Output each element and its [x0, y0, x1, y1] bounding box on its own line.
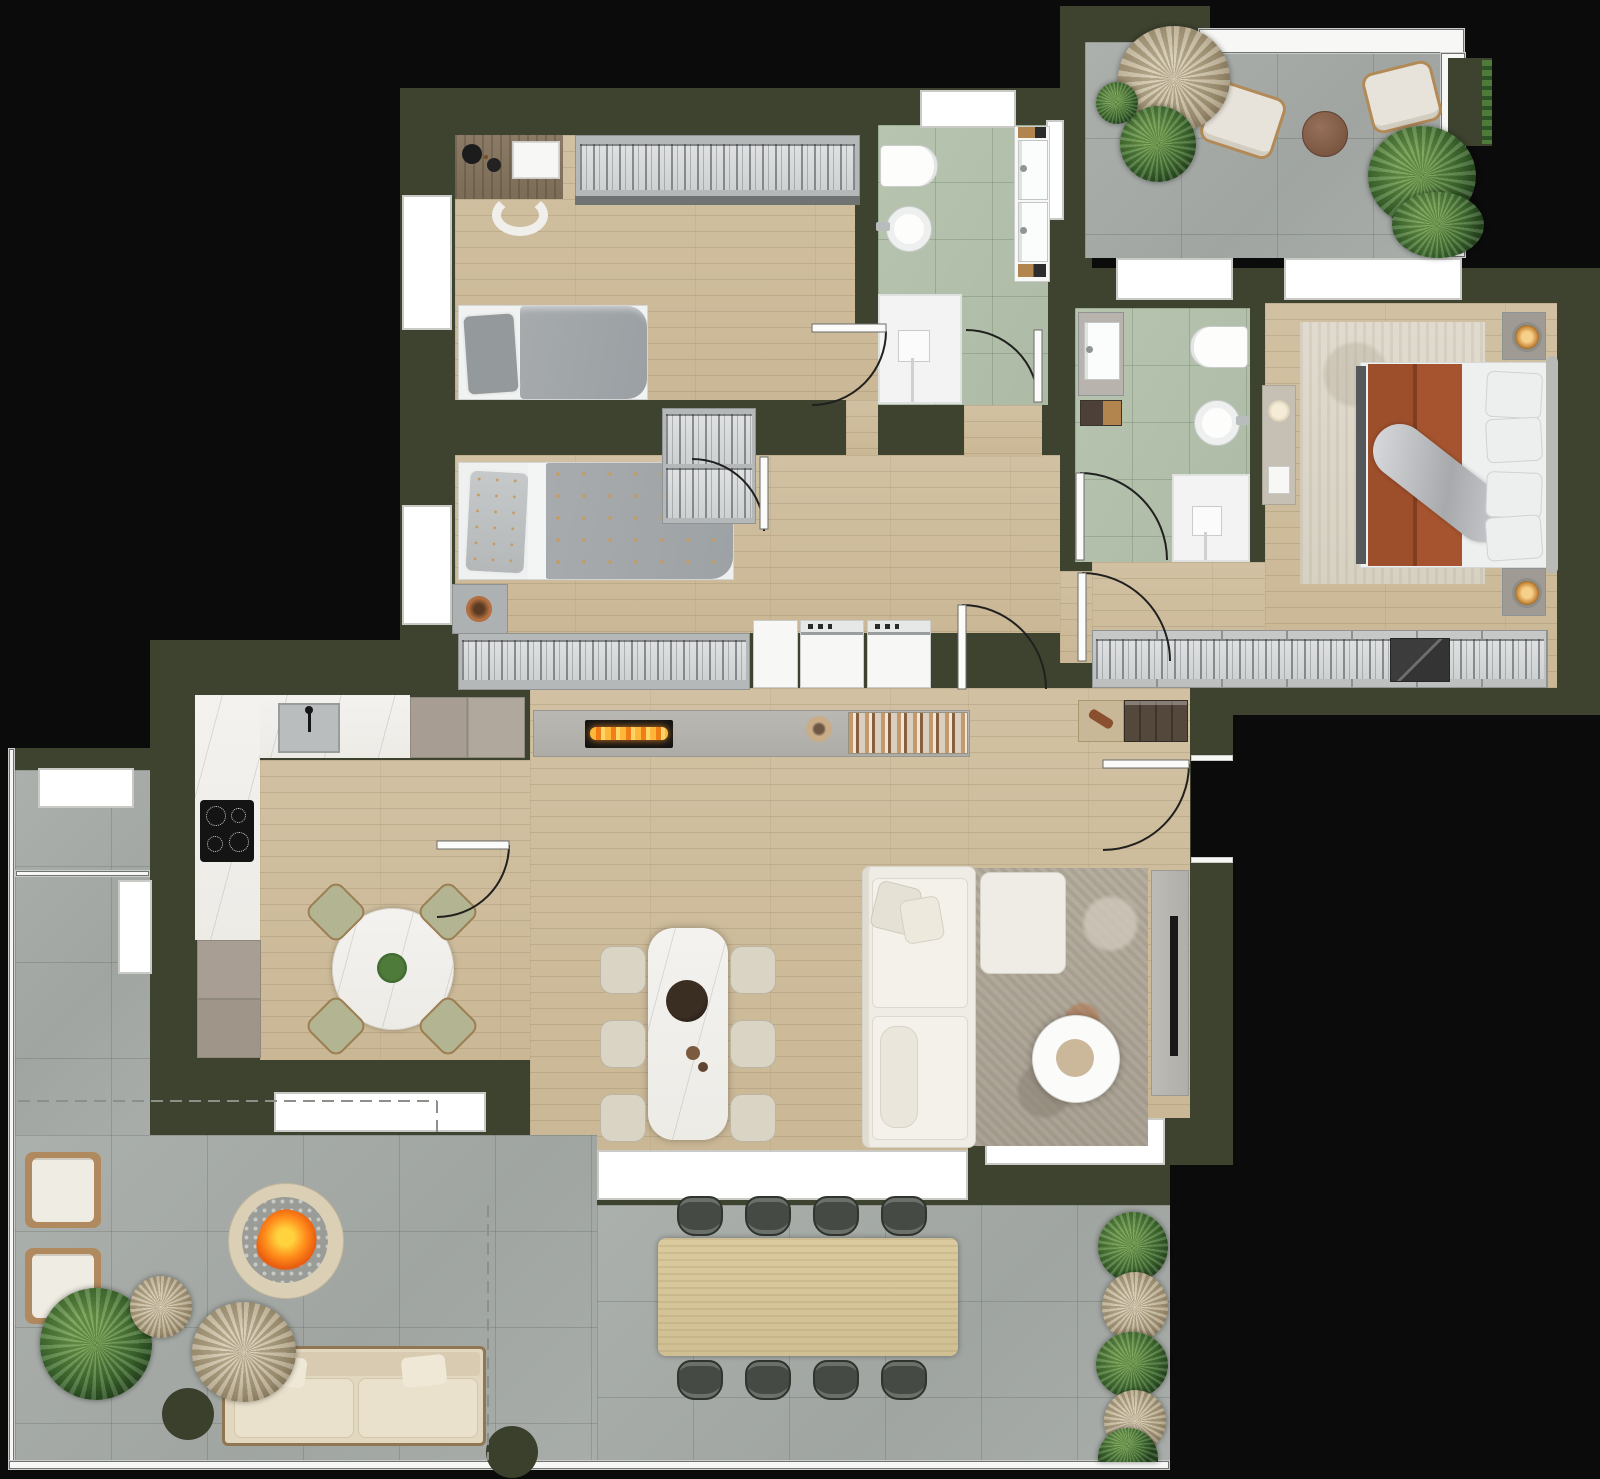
dining-chair-r3 [730, 1094, 776, 1142]
bidet-bath2-tap-icon [1236, 416, 1250, 425]
lamp-master-top [1512, 322, 1542, 352]
entry-jamb-bottom [1191, 857, 1233, 863]
tv-screen [1170, 916, 1178, 1056]
wall-bedroom-divider [455, 400, 846, 455]
vanity-bath1-faucet-top-icon [1020, 165, 1027, 172]
outdoor-dining-table [658, 1238, 958, 1356]
railing-terrace-left-edge [8, 748, 15, 1470]
dryer [867, 620, 931, 688]
plant-pampas-lower-2 [130, 1276, 192, 1338]
sofa-outdoor-pillow-2 [401, 1354, 448, 1388]
window-living-south [597, 1150, 968, 1200]
dining-chair-l1 [600, 946, 646, 994]
railing-planter-greens [1482, 60, 1492, 144]
toilet-bath1 [880, 145, 938, 187]
dresser-bedroom-2-clothes [666, 414, 752, 464]
entry-console-shoes [1124, 700, 1188, 742]
vanity-bath1-faucet-bottom-icon [1020, 227, 1027, 234]
bed-single-1-pillow [461, 311, 521, 397]
wardrobe-bedroom2-lower-clothes [462, 640, 746, 680]
bed-master-headboard [1546, 356, 1558, 574]
cooktop-burner-2 [231, 808, 246, 823]
floor-corridor-connector [846, 400, 878, 455]
shower-bath2-stem [1204, 532, 1207, 560]
kitchen-tall-units [410, 697, 525, 758]
dining-chair-r2 [730, 1020, 776, 1068]
outdoor-chair-t2 [745, 1196, 791, 1236]
open-book [512, 141, 560, 179]
window-terrace-left-east [118, 880, 152, 974]
kitchen-faucet-stem-icon [308, 712, 311, 732]
floor-plan [0, 0, 1600, 1479]
dining-centerpiece-bowl [666, 980, 708, 1022]
armchair-outdoor-1-cushion [32, 1158, 94, 1222]
fireplace-flames-icon [590, 727, 668, 740]
pillow-master-4 [1485, 514, 1544, 562]
outdoor-chair-t3 [813, 1196, 859, 1236]
sofa-pillow-2 [898, 895, 945, 945]
bed-master-frame-foot [1356, 366, 1366, 564]
dining-chair-l2 [600, 1020, 646, 1068]
railing-terrace-bottom-edge [8, 1460, 1170, 1470]
entry-opening [1191, 760, 1233, 858]
turntable-disc-icon [462, 144, 482, 164]
cooktop-burner-4 [229, 832, 249, 852]
window-bedroom-2 [402, 505, 452, 625]
laundry-counter [753, 620, 798, 688]
dining-decor-small-1 [686, 1046, 700, 1060]
floor-hallway [770, 455, 1060, 633]
wardrobe-bedroom-1-clothes [580, 144, 855, 190]
wardrobe-bedroom-1-base [575, 196, 860, 205]
plant-small-upper [1096, 82, 1138, 124]
outdoor-chair-b3 [813, 1360, 859, 1400]
toilet-bath2 [1190, 326, 1248, 368]
sofa-lounge-cushion [880, 1026, 918, 1128]
books-row [848, 712, 968, 754]
coffee-table-decor [1056, 1039, 1094, 1077]
window-bedroom-1 [402, 195, 452, 330]
window-bathroom-1 [920, 90, 1016, 128]
railing-terrace-upper-top [1198, 28, 1465, 54]
outdoor-chair-t4 [881, 1196, 927, 1236]
vanity-bath2-shelf [1080, 400, 1122, 426]
window-master-right [1284, 258, 1462, 300]
pillow-master-2 [1485, 417, 1543, 464]
plant-strip-3 [1096, 1332, 1168, 1398]
floor-master-door-threshold [1060, 571, 1092, 663]
entry-jamb-top [1191, 755, 1233, 761]
dining-chair-l3 [600, 1094, 646, 1142]
kitchen-table-plant [377, 953, 407, 983]
dining-decor-small-2 [698, 1062, 708, 1072]
outdoor-chair-t1 [677, 1196, 723, 1236]
turntable-arm-icon [487, 158, 501, 172]
dining-chair-r1 [730, 946, 776, 994]
bench-decor-plate [1268, 400, 1290, 422]
side-table-round [1302, 111, 1348, 157]
cooktop-burner-1 [206, 806, 226, 826]
bed-single-1-duvet [520, 306, 647, 399]
planter-round-1 [162, 1388, 214, 1440]
vanity-bath2-faucet-icon [1086, 346, 1093, 353]
bidet-bath1-tap-icon [876, 222, 890, 231]
window-terrace-left-north [38, 768, 134, 808]
bed-single-2-sheet [528, 463, 546, 579]
dresser-bedroom-2-clothes-lower [666, 468, 752, 518]
plant-pampas-lower [192, 1302, 296, 1402]
window-master-left [1116, 258, 1233, 300]
vanity-bath1-tray-bottom [1018, 264, 1046, 277]
shower-bath1-stem [911, 358, 914, 402]
dining-table [648, 928, 728, 1140]
plant-large-upper-2 [1392, 192, 1484, 258]
shower-bath1-valve [898, 330, 930, 362]
washer-controls-icon [808, 624, 832, 629]
bed-single-2-pillow [463, 468, 530, 575]
dryer-controls-icon [875, 624, 899, 629]
sofa-ottoman [980, 872, 1066, 974]
washer [800, 620, 864, 688]
bench-decor-box [1268, 466, 1290, 494]
wardrobe-master-clothes [1096, 639, 1544, 679]
outdoor-chair-b1 [677, 1360, 723, 1400]
cooktop-burner-3 [207, 836, 223, 852]
vanity-bath1-tray-top [1018, 127, 1046, 138]
pillow-master-3 [1485, 471, 1543, 519]
pillow-master-1 [1485, 371, 1543, 420]
kitchen-fridge-units [197, 940, 261, 1058]
shower-bath2-valve [1192, 506, 1222, 536]
outdoor-chair-b2 [745, 1360, 791, 1400]
nightstand-lamp-copper [466, 596, 492, 622]
window-kitchen-south [274, 1092, 486, 1132]
decor-plate-console [806, 716, 832, 742]
sofa-outdoor-cushion-2 [358, 1378, 478, 1438]
wardrobe-master-dark-cell [1390, 638, 1450, 682]
lamp-master-bottom [1512, 578, 1542, 608]
desk-chair [492, 194, 548, 236]
divider-terrace-left [15, 870, 150, 877]
planter-round-2 [486, 1426, 538, 1478]
bidet-bath2 [1194, 400, 1240, 446]
bidet-bath1 [886, 206, 932, 252]
floor-bath1-threshold [964, 405, 1042, 457]
outdoor-chair-b4 [881, 1360, 927, 1400]
